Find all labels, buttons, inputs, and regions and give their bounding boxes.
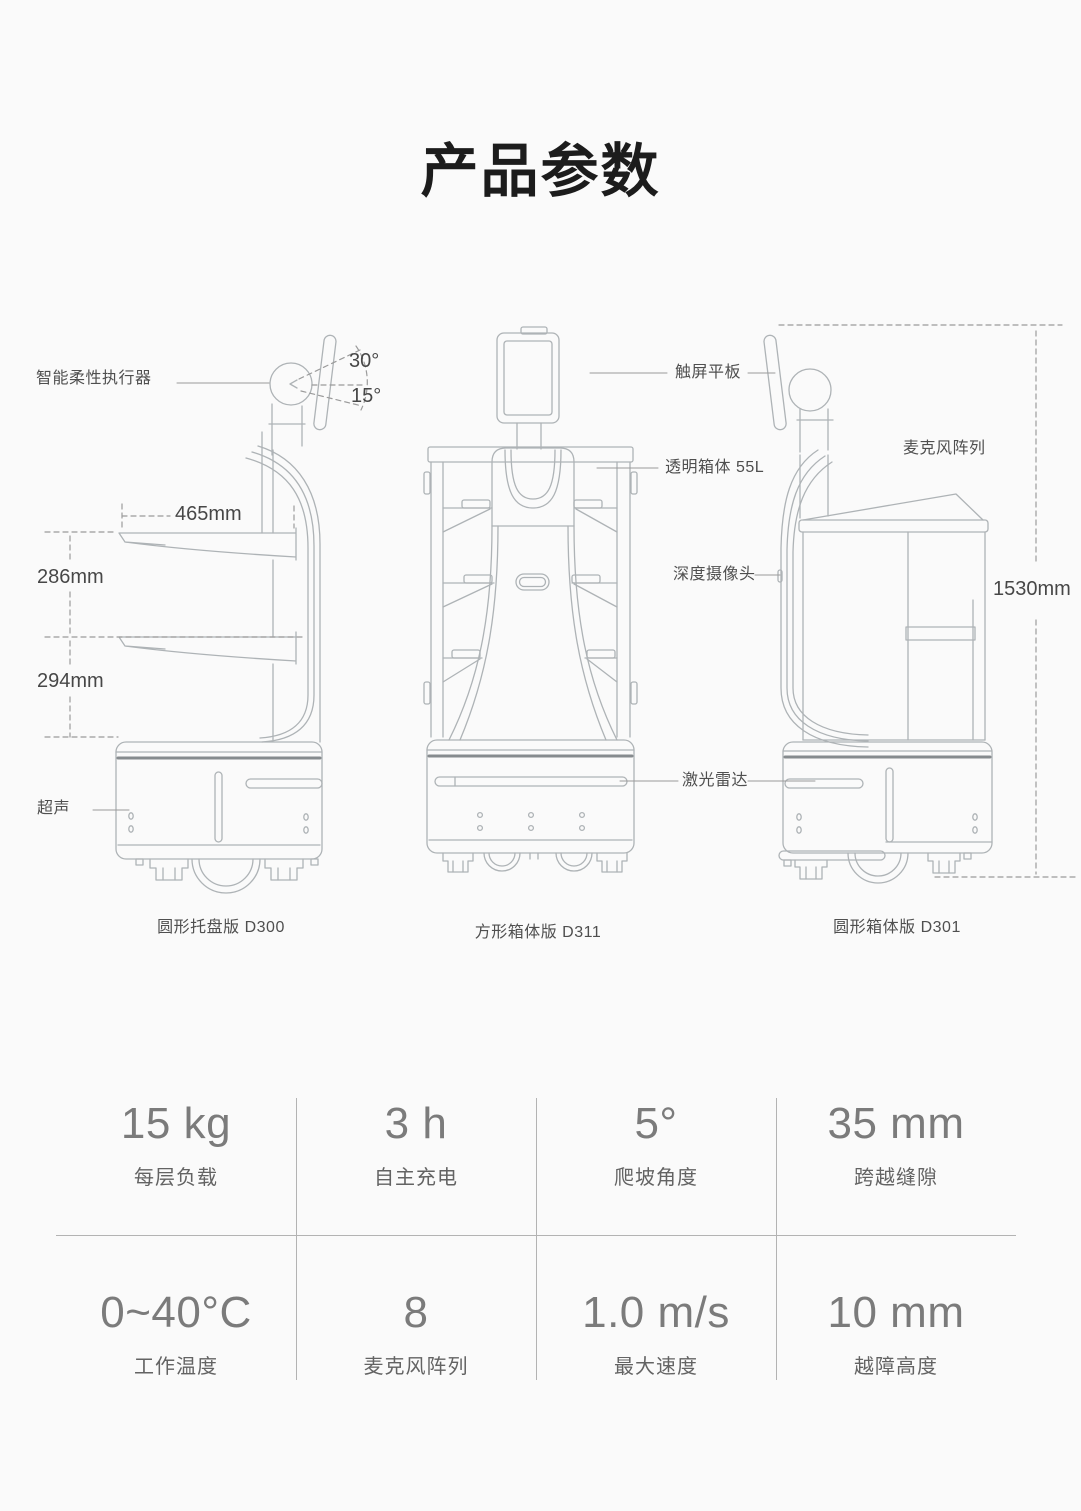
spec-label: 麦克风阵列 — [296, 1353, 536, 1381]
spec-item-gap-crossing: 35 mm 跨越缝隙 — [776, 1090, 1016, 1235]
spec-label: 跨越缝隙 — [776, 1164, 1016, 1192]
callout-lidar-label: 激光雷达 — [682, 772, 748, 790]
d311-tablet-icon — [497, 333, 559, 423]
product-spec-page: 产品参数 — [0, 0, 1081, 1511]
caption-d300: 圆形托盘版 D300 — [111, 913, 331, 937]
d301-base — [779, 742, 992, 860]
robot-d300-drawing — [116, 335, 337, 893]
spec-label: 最大速度 — [536, 1353, 776, 1381]
d300-wheels — [136, 859, 318, 893]
spec-label: 爬坡角度 — [536, 1164, 776, 1192]
caption-d301: 圆形箱体版 D301 — [787, 913, 1007, 937]
spec-label: 自主充电 — [296, 1164, 536, 1192]
d301-cabinet — [799, 494, 988, 740]
spec-label: 工作温度 — [56, 1353, 296, 1381]
spec-grid: 15 kg 每层负载 3 h 自主充电 5° 爬坡角度 35 mm 跨越缝隙 0… — [56, 1090, 1016, 1390]
d301-tablet-icon — [763, 335, 786, 431]
spec-grid-horizontal-divider — [56, 1235, 1016, 1236]
callout-angle-up-label: 30° — [349, 350, 379, 373]
spec-grid-vertical-divider — [536, 1098, 537, 1380]
dimension-lines — [45, 325, 1078, 877]
robot-diagram: 智能柔性执行器 30° 15° 465mm 286mm 294mm 超声 触屏平… — [0, 0, 1081, 1050]
d301-depth-camera-window — [778, 570, 782, 582]
robot-d311-drawing — [424, 327, 637, 872]
spec-value: 15 kg — [56, 1096, 296, 1152]
spec-value: 1.0 m/s — [536, 1285, 776, 1341]
spec-value: 0~40°C — [56, 1285, 296, 1341]
robot-d301-drawing — [763, 335, 992, 883]
dim-tray-width-label: 465mm — [175, 503, 242, 526]
spec-value: 35 mm — [776, 1096, 1016, 1152]
dim-tray-spacing-lower-label: 294mm — [37, 670, 104, 693]
dim-tray-spacing-upper-label: 286mm — [37, 566, 104, 589]
robot-line-drawings — [0, 0, 1081, 1050]
spec-grid-vertical-divider — [776, 1098, 777, 1380]
callout-depth-camera-label: 深度摄像头 — [673, 566, 756, 584]
spec-item-max-speed: 1.0 m/s 最大速度 — [536, 1235, 776, 1390]
d311-lidar-slot — [435, 777, 627, 786]
callout-ultrasonic-label: 超声 — [37, 800, 70, 818]
caption-d311: 方形箱体版 D311 — [428, 918, 648, 942]
d311-wheels — [443, 853, 627, 872]
spec-item-payload: 15 kg 每层负载 — [56, 1090, 296, 1235]
dim-overall-height-label: 1530mm — [993, 578, 1071, 601]
callout-touchscreen-label: 触屏平板 — [675, 364, 741, 382]
spec-value: 8 — [296, 1285, 536, 1341]
callout-mic-array-label: 麦克风阵列 — [903, 440, 986, 458]
spec-item-temperature: 0~40°C 工作温度 — [56, 1235, 296, 1390]
spec-value: 3 h — [296, 1096, 536, 1152]
d300-base — [116, 742, 322, 859]
callout-angle-down-label: 15° — [351, 385, 381, 408]
d301-head-joint — [789, 369, 831, 411]
spec-label: 每层负载 — [56, 1164, 296, 1192]
spec-value: 5° — [536, 1096, 776, 1152]
callout-actuator-label: 智能柔性执行器 — [36, 370, 152, 388]
spec-item-charging: 3 h 自主充电 — [296, 1090, 536, 1235]
callout-lines — [93, 373, 815, 810]
spec-value: 10 mm — [776, 1285, 1016, 1341]
d301-lidar-slot — [785, 779, 863, 788]
spec-label: 越障高度 — [776, 1353, 1016, 1381]
spec-item-mic-array: 8 麦克风阵列 — [296, 1235, 536, 1390]
d311-base — [427, 740, 634, 853]
spec-item-climb-angle: 5° 爬坡角度 — [536, 1090, 776, 1235]
d301-wheels — [784, 853, 971, 883]
spec-grid-vertical-divider — [296, 1098, 297, 1380]
d300-tray-upper — [119, 528, 296, 560]
callout-transparent-box-label: 透明箱体 55L — [665, 459, 764, 477]
d311-handle — [516, 574, 549, 590]
d311-transparent-box — [424, 447, 637, 737]
d300-tablet-icon — [313, 335, 336, 431]
spec-item-obstacle-height: 10 mm 越障高度 — [776, 1235, 1016, 1390]
